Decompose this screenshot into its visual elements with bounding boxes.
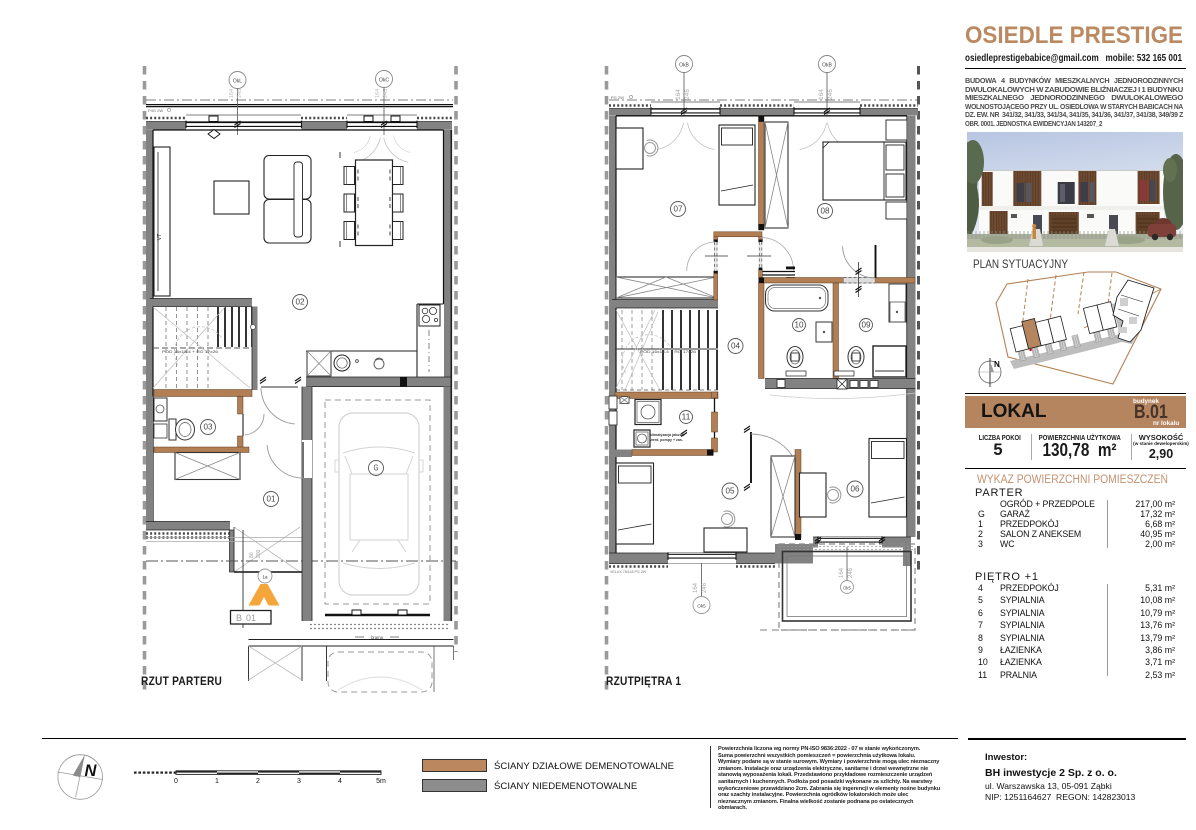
svg-text:0: 0 <box>174 778 178 785</box>
svg-text:246: 246 <box>702 582 708 593</box>
svg-text:245: 245 <box>383 89 389 98</box>
svg-text:04: 04 <box>731 342 741 351</box>
svg-text:1a: 1a <box>262 575 268 580</box>
svg-text:246: 246 <box>684 89 691 100</box>
svg-text:10: 10 <box>795 321 805 330</box>
svg-text:01: 01 <box>267 495 277 504</box>
svg-text:VELUX 78/118 PG 2W: VELUX 78/118 PG 2W <box>610 570 647 574</box>
svg-text:2: 2 <box>256 778 260 785</box>
svg-text:Ok5: Ok5 <box>843 586 851 591</box>
svg-text:06: 06 <box>851 485 861 494</box>
svg-text:08: 08 <box>821 207 831 216</box>
svg-text:Ok5: Ok5 <box>697 604 706 609</box>
svg-text:went. pompy + zas.: went. pompy + zas. <box>649 438 683 442</box>
svg-text:245: 245 <box>237 89 243 98</box>
svg-text:164: 164 <box>818 89 825 100</box>
svg-text:164: 164 <box>693 582 699 593</box>
svg-text:246: 246 <box>848 567 854 578</box>
svg-text:N: N <box>994 360 1000 369</box>
svg-text:4: 4 <box>338 778 342 785</box>
svg-text:P4G 2W: P4G 2W <box>148 108 163 113</box>
svg-text:164: 164 <box>675 89 682 100</box>
svg-text:03: 03 <box>204 423 214 432</box>
svg-text:02: 02 <box>296 298 306 307</box>
svg-text:3: 3 <box>297 778 301 785</box>
svg-text:OkB: OkB <box>822 63 832 69</box>
svg-text:246: 246 <box>827 89 834 100</box>
svg-text:OkC: OkC <box>379 78 389 84</box>
svg-text:07: 07 <box>674 205 684 214</box>
svg-text:G: G <box>374 464 379 473</box>
svg-text:11: 11 <box>682 413 692 422</box>
svg-text:164: 164 <box>375 89 381 98</box>
svg-text:164: 164 <box>229 89 235 98</box>
svg-text:05: 05 <box>726 487 736 496</box>
svg-text:POD 16x18.4 + RG 17x26: POD 16x18.4 + RG 17x26 <box>162 350 218 354</box>
svg-text:200: 200 <box>256 549 262 558</box>
svg-text:N: N <box>85 762 98 780</box>
svg-text:B: B <box>236 613 242 623</box>
svg-text:01: 01 <box>246 613 256 623</box>
svg-text:5m: 5m <box>376 778 386 785</box>
svg-text:OkB: OkB <box>679 63 689 69</box>
svg-text:80: 80 <box>249 552 255 558</box>
svg-text:PG 2W: PG 2W <box>611 95 624 100</box>
svg-text:164: 164 <box>839 567 845 578</box>
svg-text:09: 09 <box>862 321 872 330</box>
svg-text:VT: VT <box>157 234 163 240</box>
svg-text:POD 16x18.4 + RG 17x26: POD 16x18.4 + RG 17x26 <box>640 350 696 354</box>
svg-text:1: 1 <box>215 778 219 785</box>
svg-text:klimatyzacja jakośći: klimatyzacja jakośći <box>650 433 684 437</box>
svg-text:OkL: OkL <box>233 79 242 85</box>
